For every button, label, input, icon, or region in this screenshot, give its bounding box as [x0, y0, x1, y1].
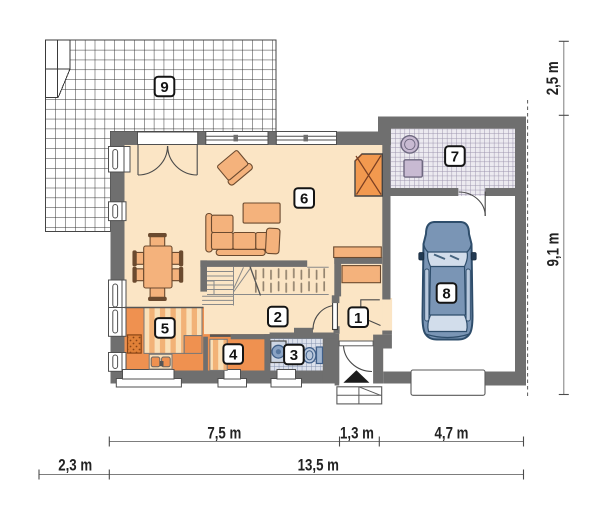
svg-text:2: 2 [274, 309, 282, 326]
svg-text:4,7 m: 4,7 m [435, 424, 469, 443]
svg-text:7,5 m: 7,5 m [207, 424, 241, 443]
svg-text:9,1 m: 9,1 m [544, 233, 563, 267]
svg-text:2,5 m: 2,5 m [544, 61, 563, 95]
svg-text:3: 3 [290, 347, 298, 364]
svg-text:1: 1 [354, 310, 362, 327]
svg-text:5: 5 [161, 321, 169, 338]
svg-text:9: 9 [160, 79, 168, 96]
svg-text:4: 4 [229, 347, 238, 364]
svg-text:2,3 m: 2,3 m [58, 456, 92, 475]
svg-text:8: 8 [442, 286, 450, 303]
svg-text:6: 6 [300, 191, 308, 208]
svg-text:7: 7 [451, 149, 459, 166]
svg-text:1,3 m: 1,3 m [340, 424, 374, 443]
svg-text:13,5 m: 13,5 m [298, 456, 339, 475]
